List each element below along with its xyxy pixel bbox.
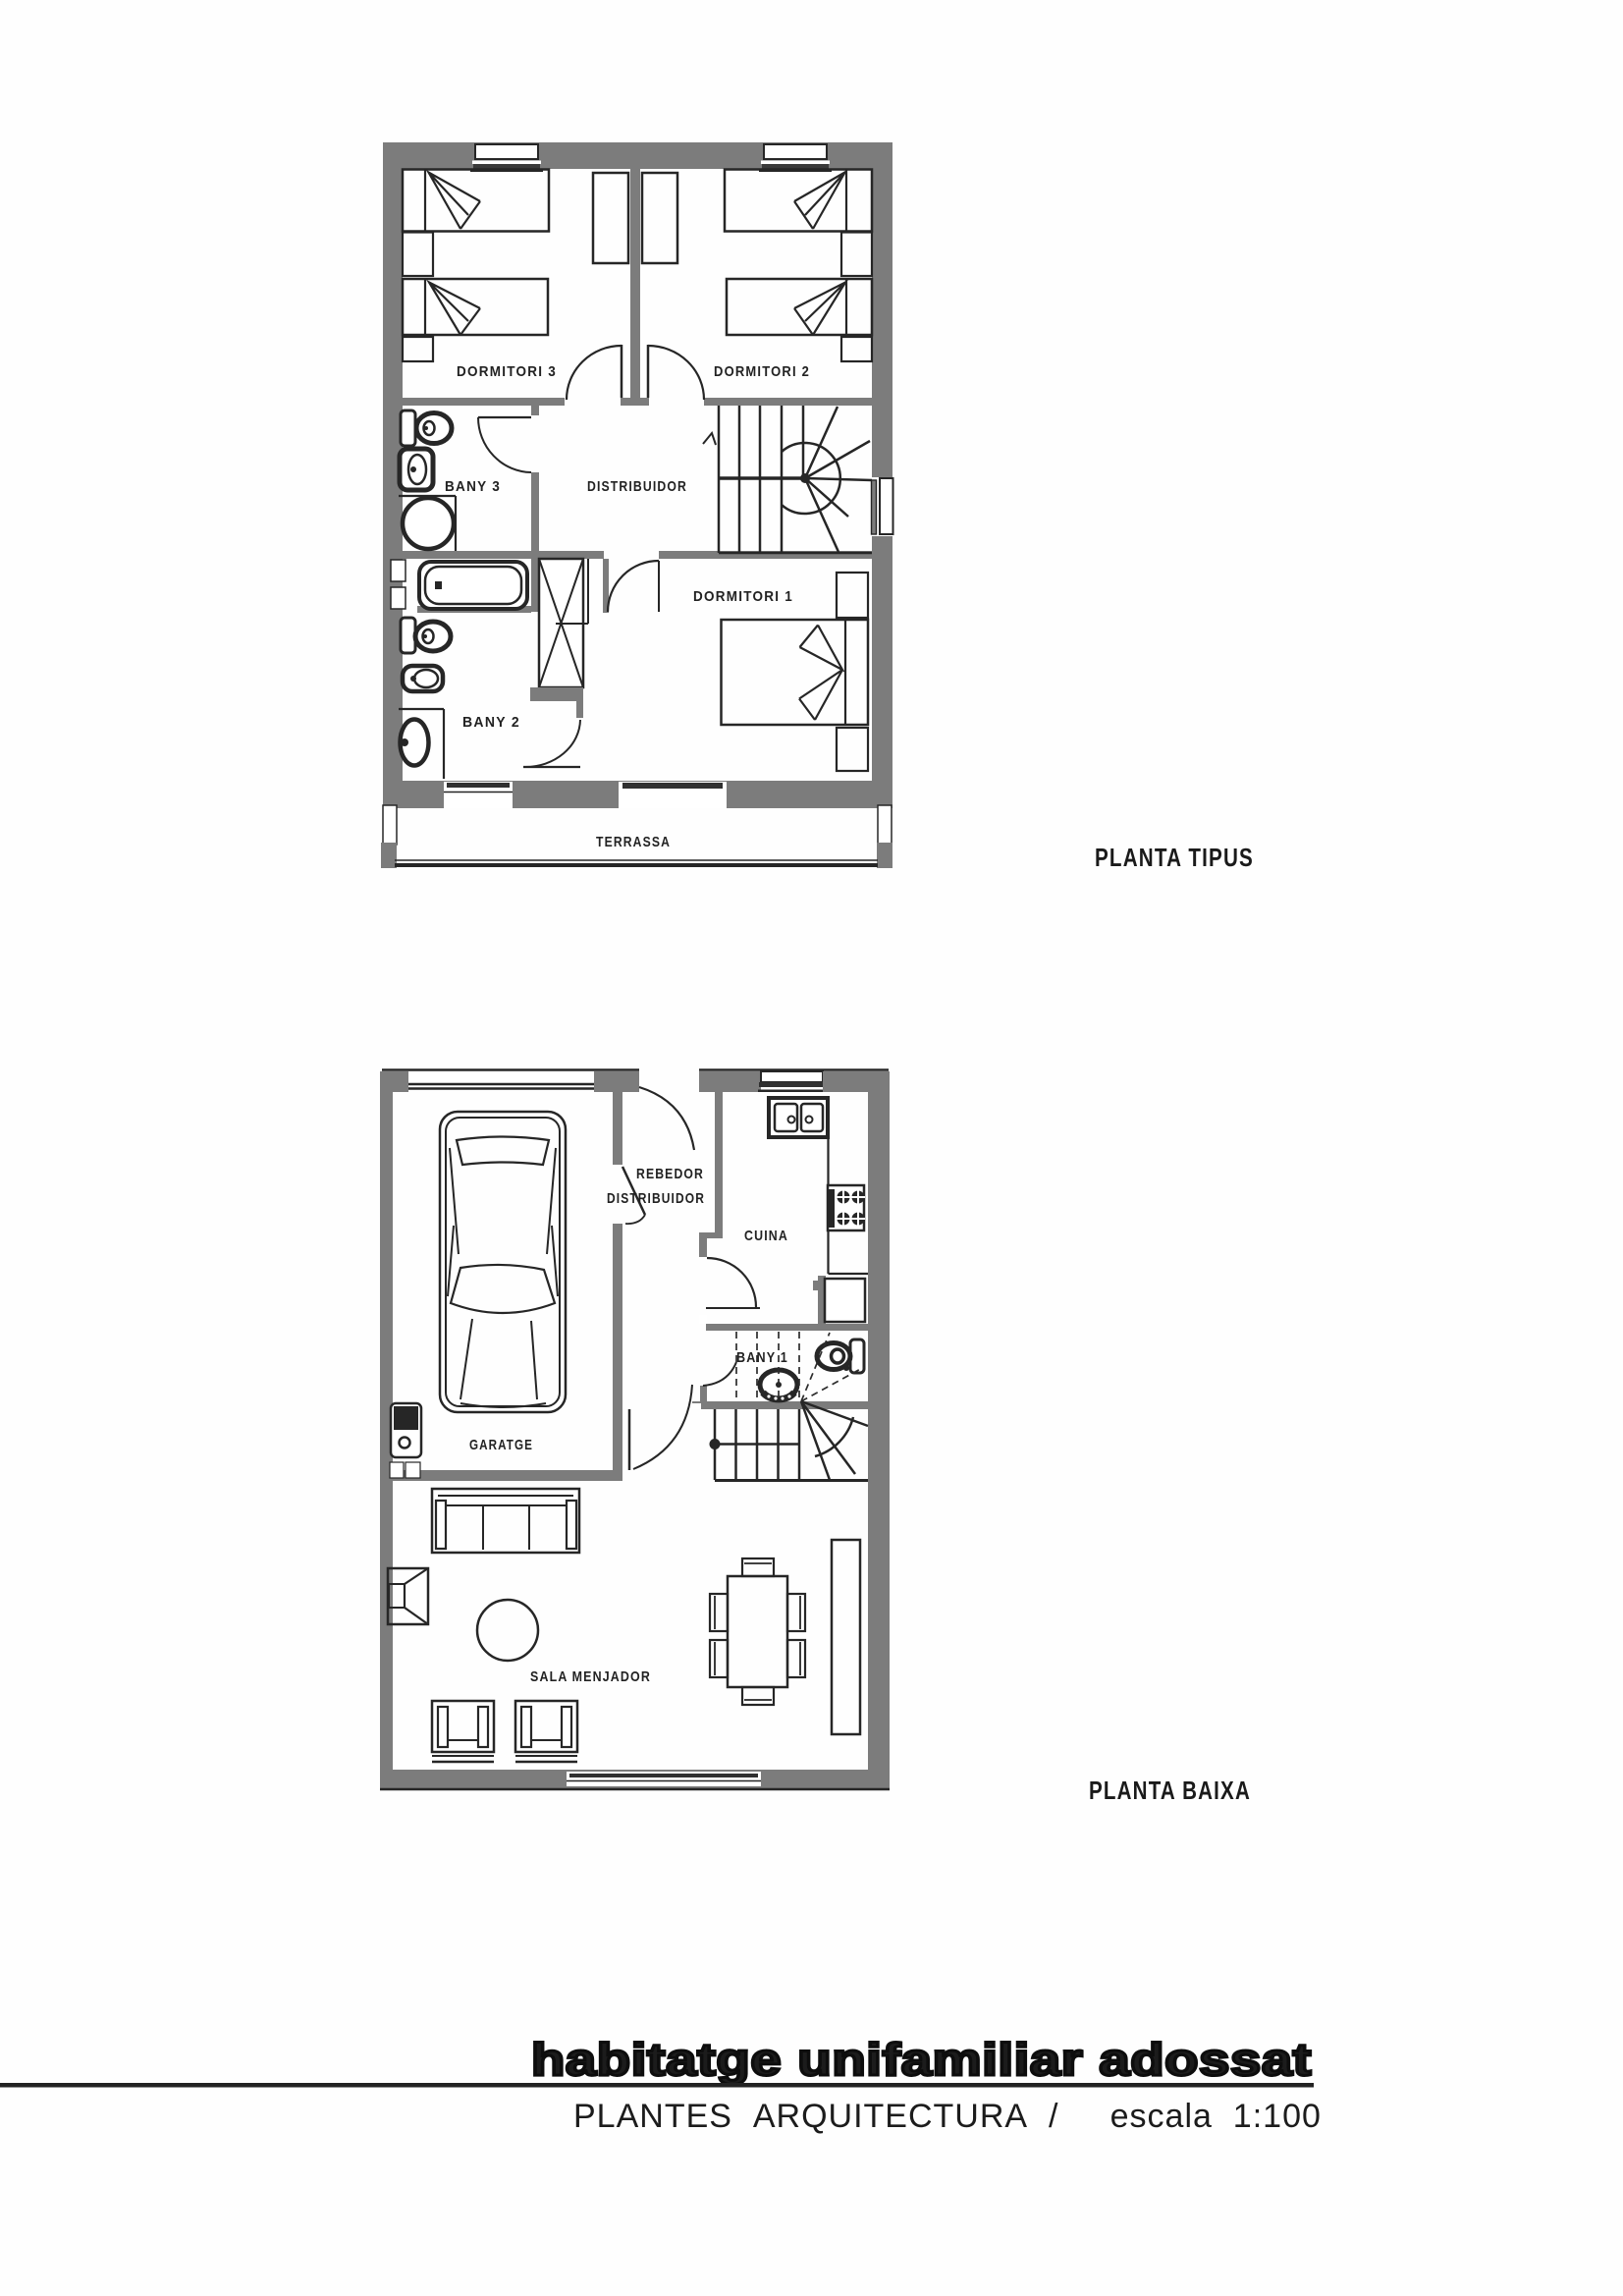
svg-text:PLANTA TIPUS: PLANTA TIPUS [1095, 843, 1254, 872]
svg-text:DORMITORI 2: DORMITORI 2 [714, 363, 810, 380]
svg-text:habitatge unifamiliar adossat: habitatge unifamiliar adossat [531, 2034, 1312, 2085]
svg-text:PLANTES ARQUITECTURA / e: PLANTES ARQUITECTURA / escala 1:100 [573, 2098, 1322, 2135]
svg-text:TERRASSA: TERRASSA [596, 834, 671, 850]
svg-text:DORMITORI 1: DORMITORI 1 [693, 588, 793, 605]
svg-text:SALA MENJADOR: SALA MENJADOR [530, 1668, 651, 1685]
svg-text:DISTRIBUIDOR: DISTRIBUIDOR [587, 478, 687, 495]
svg-text:BANY 3: BANY 3 [445, 478, 501, 495]
svg-text:BANY 2: BANY 2 [462, 714, 520, 731]
svg-text:BANY 1: BANY 1 [736, 1349, 788, 1366]
svg-text:GARATGE: GARATGE [469, 1437, 533, 1453]
svg-text:CUINA: CUINA [744, 1228, 788, 1244]
svg-text:REBEDOR: REBEDOR [636, 1166, 704, 1182]
svg-text:PLANTA BAIXA: PLANTA BAIXA [1089, 1776, 1251, 1805]
svg-text:DORMITORI 3: DORMITORI 3 [457, 363, 557, 380]
svg-text:DISTRIBUIDOR: DISTRIBUIDOR [607, 1190, 705, 1207]
